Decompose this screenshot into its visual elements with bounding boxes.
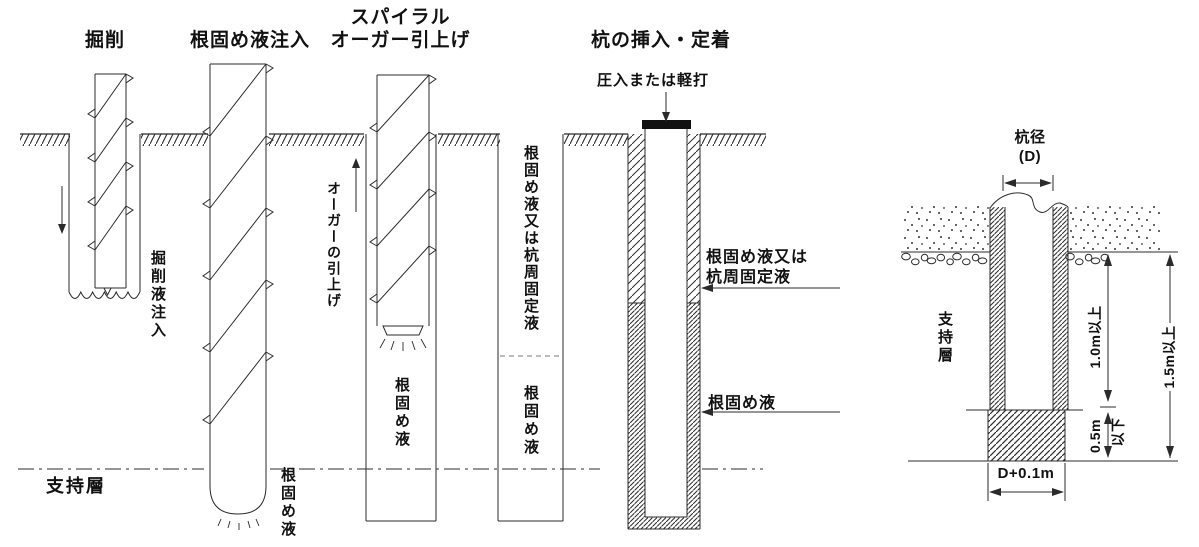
- pile-cap: [642, 120, 691, 129]
- step-label-pile-insertion: 杭の挿入・定着: [586, 25, 736, 52]
- gravel-row: [1066, 253, 1109, 264]
- root-or-fixing-liquid-label-step4: 根固め液又は杭周固定液: [520, 145, 541, 332]
- excavation-front-scallops: [69, 292, 140, 299]
- step1-excavation-hole: [58, 74, 140, 299]
- preboring-pile-method-diagram: 掘削 根固め液注入 スパイラル オーガー引上げ 杭の挿入・定着 圧入または軽打 …: [0, 0, 1199, 547]
- step-label-spiral-line1: スパイラル: [318, 6, 483, 29]
- embed-depth-dimension: 1.0m以上: [1085, 297, 1105, 377]
- auger3-spiral: [370, 75, 436, 303]
- root-liquid-label-step3: 根固め液: [391, 377, 412, 449]
- pile-diameter-label: 杭径: [1000, 126, 1060, 147]
- tip-gap-suffix: 以下: [1108, 412, 1128, 452]
- pile-diameter-symbol: (D): [1000, 148, 1060, 165]
- bearing-stratum-label-main: 支持層: [46, 472, 106, 498]
- auger2-spiral: [203, 64, 273, 424]
- bearing-stratum-label-detail: 支持層: [934, 311, 955, 365]
- root-liquid-label-step4: 根固め液: [520, 385, 541, 457]
- ground-surface: [20, 134, 766, 146]
- auger-pull-up-label: オーガーの引上げ: [324, 181, 344, 309]
- total-depth-dimension: 1.5m以上: [1159, 317, 1179, 397]
- step-label-root-liquid-injection: 根固め液注入: [165, 25, 335, 52]
- step-label-excavation: 掘削: [60, 25, 150, 52]
- total-depth-text: 1.5m以上: [1161, 323, 1177, 392]
- step-label-spiral-auger-withdrawal: スパイラル オーガー引上げ: [318, 6, 483, 52]
- bulb-width-dimension: D+0.1m: [986, 465, 1066, 482]
- root-liquid-label-step2: 根固め液: [277, 467, 298, 539]
- press-or-tap-label: 圧入または軽打: [578, 69, 728, 90]
- step5-pile-inserted: [628, 92, 840, 529]
- drilling-fluid-injection-label: 掘削液注入: [147, 250, 168, 340]
- callout-root-liquid: 根固め液: [708, 389, 776, 413]
- tip-gap-dimension: 0.5m: [1087, 411, 1103, 461]
- auger3-tip-cap: [383, 326, 423, 335]
- tip-spray: [380, 339, 426, 351]
- step-label-spiral-line2: オーガー引上げ: [318, 29, 483, 52]
- auger2-round-tip: [210, 486, 266, 514]
- step2-auger-deep: [203, 64, 273, 530]
- injection-spray: [218, 519, 259, 530]
- gravel-row: [902, 253, 987, 264]
- step3-hole-auger-lifting: [352, 75, 436, 521]
- callout-root-or-fixing-line2: 杭周固定液: [706, 263, 791, 287]
